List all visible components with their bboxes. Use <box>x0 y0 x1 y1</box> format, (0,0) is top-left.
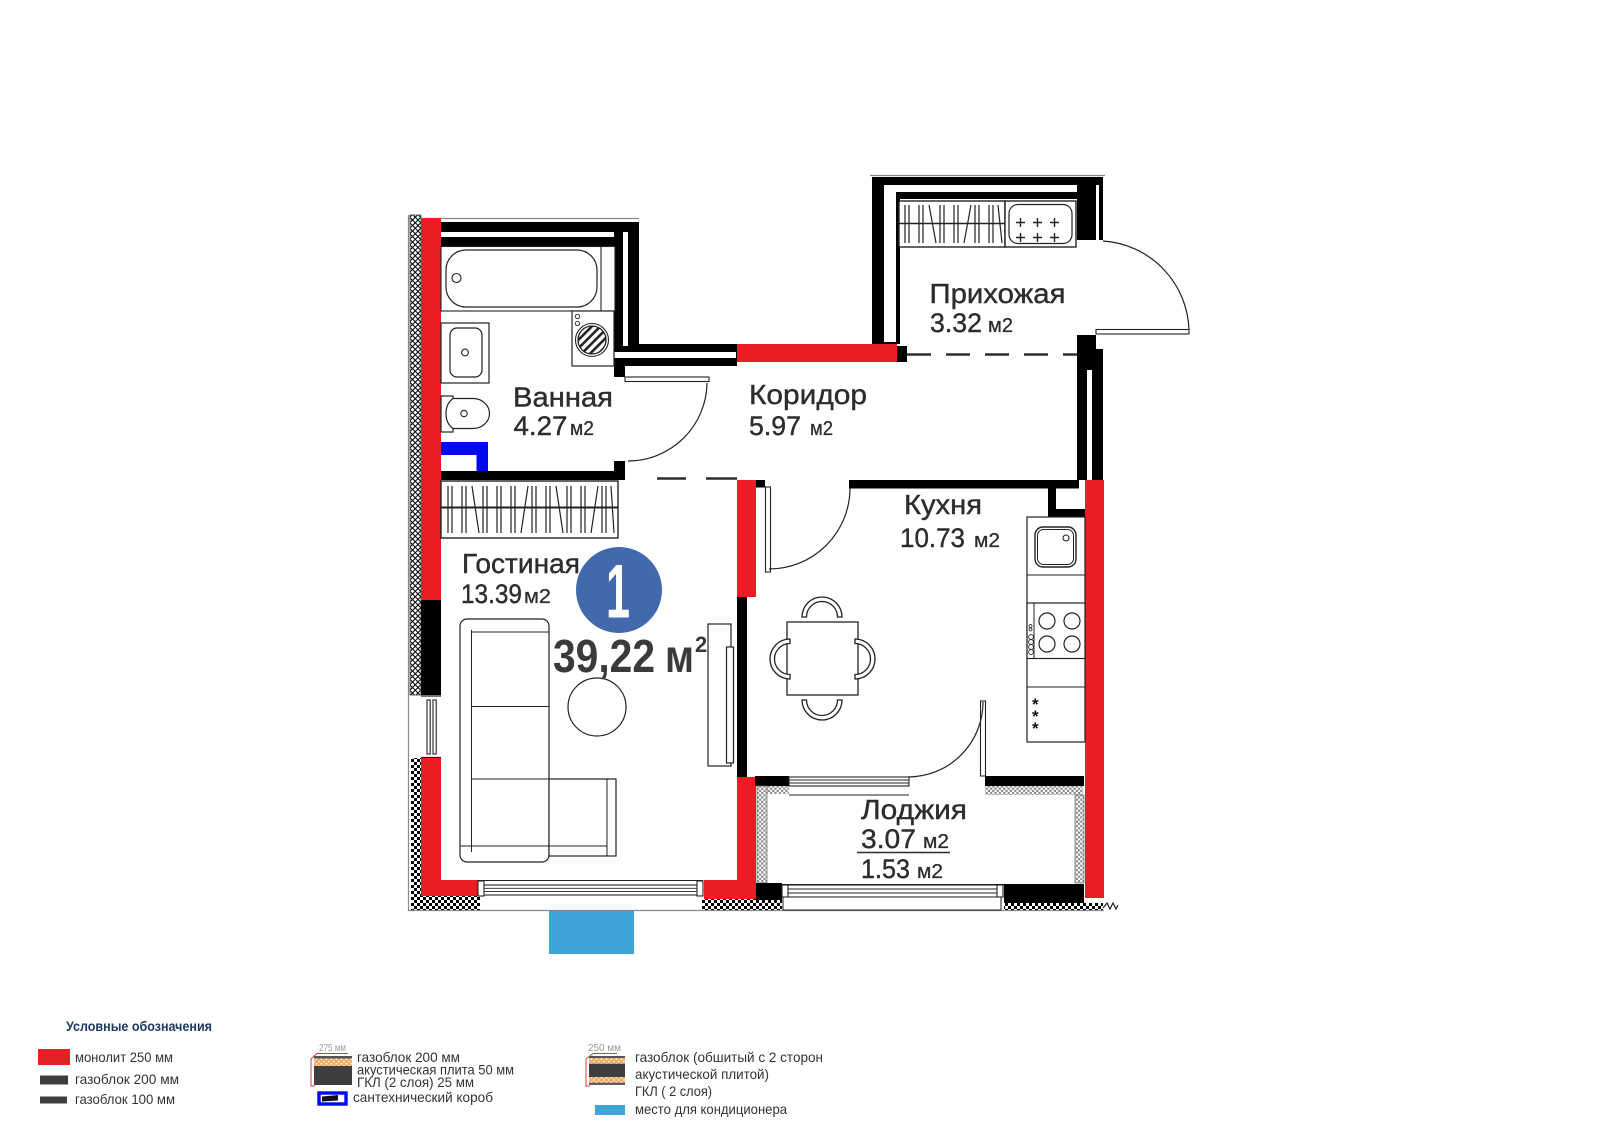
svg-text:3.32: 3.32 <box>930 308 982 338</box>
svg-text:275 мм: 275 мм <box>319 1042 346 1054</box>
svg-text:2: 2 <box>695 632 707 657</box>
svg-text:м: м <box>665 630 694 682</box>
svg-text:Ванная: Ванная <box>513 382 613 413</box>
svg-text:3.07: 3.07 <box>861 824 916 854</box>
svg-text:13.39: 13.39 <box>461 579 522 609</box>
svg-text:монолит 250 мм: монолит 250 мм <box>75 1049 173 1065</box>
svg-text:Условные обозначения: Условные обозначения <box>66 1018 212 1034</box>
svg-text:Коридор: Коридор <box>749 379 867 410</box>
svg-text:4.27: 4.27 <box>514 411 568 441</box>
svg-text:газоблок (обшитый с 2 сторон: газоблок (обшитый с 2 сторон <box>635 1049 823 1065</box>
svg-text:ГКЛ (2 слоя) 25 мм: ГКЛ (2 слоя) 25 мм <box>357 1074 474 1090</box>
svg-text:м2: м2 <box>923 831 949 853</box>
svg-text:м2: м2 <box>988 315 1013 337</box>
svg-text:Лоджия: Лоджия <box>861 794 967 825</box>
svg-text:акустической плитой): акустической плитой) <box>635 1066 769 1082</box>
svg-text:1.53: 1.53 <box>861 854 910 884</box>
svg-text:м2: м2 <box>570 418 594 440</box>
svg-text:*: * <box>1032 719 1039 738</box>
svg-text:газоблок 200 мм: газоблок 200 мм <box>75 1071 179 1087</box>
svg-text:250 мм: 250 мм <box>588 1042 621 1054</box>
svg-text:10.73: 10.73 <box>900 523 965 553</box>
svg-text:сантехнический короб: сантехнический короб <box>353 1089 493 1105</box>
svg-text:39,22: 39,22 <box>553 630 655 682</box>
svg-text:м2: м2 <box>974 530 1000 552</box>
svg-text:Прихожая: Прихожая <box>930 278 1066 309</box>
svg-text:м2: м2 <box>524 586 551 608</box>
svg-text:место для кондиционера: место для кондиционера <box>635 1101 787 1117</box>
svg-text:1: 1 <box>606 550 630 635</box>
svg-text:Кухня: Кухня <box>904 489 982 520</box>
svg-text:газоблок 100 мм: газоблок 100 мм <box>75 1091 175 1107</box>
svg-text:м2: м2 <box>810 418 833 440</box>
svg-text:Гостиная: Гостиная <box>462 548 580 579</box>
svg-text:м2: м2 <box>917 861 943 883</box>
svg-text:ГКЛ ( 2 слоя): ГКЛ ( 2 слоя) <box>635 1083 712 1099</box>
svg-text:5.97: 5.97 <box>749 411 801 441</box>
